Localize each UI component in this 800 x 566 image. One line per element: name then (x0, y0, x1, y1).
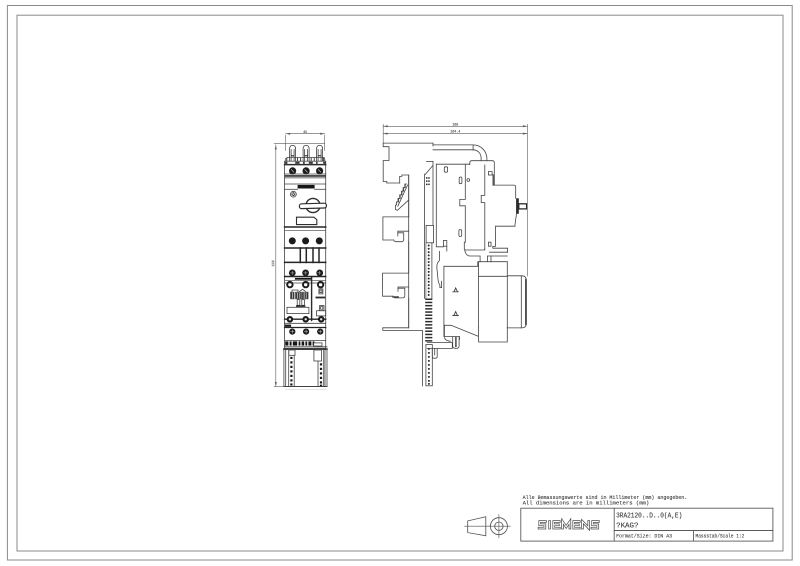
svg-text:Format/Size: DIN A3: Format/Size: DIN A3 (616, 533, 672, 540)
svg-text:?KAG?: ?KAG? (616, 523, 638, 531)
svg-text:45: 45 (303, 131, 307, 135)
svg-text:164.4: 164.4 (450, 131, 460, 135)
svg-text:3RA2120..D..0(A,E): 3RA2120..D..0(A,E) (616, 513, 682, 521)
svg-text:168: 168 (452, 123, 458, 127)
svg-text:150: 150 (272, 260, 276, 266)
svg-text:Massstab/Scale 1:2: Massstab/Scale 1:2 (696, 533, 745, 540)
svg-text:All dimensions are in millimet: All dimensions are in millimeters (mm) (523, 500, 650, 506)
